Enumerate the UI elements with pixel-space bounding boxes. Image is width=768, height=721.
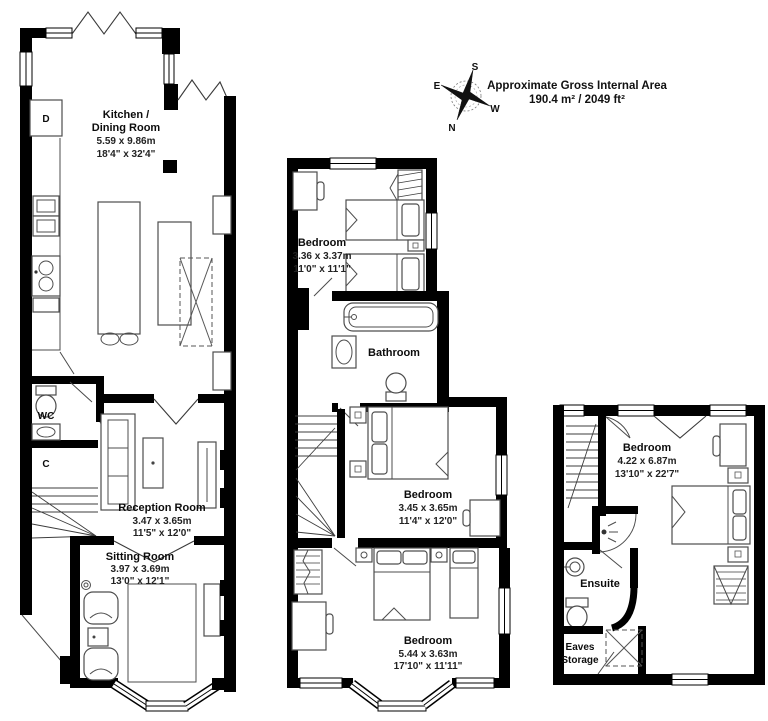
toilet-cistern <box>36 386 56 395</box>
bedroom-front-label: Bedroom <box>298 237 347 249</box>
shower <box>600 514 636 552</box>
kitchen-label-2: Dining Room <box>92 122 161 134</box>
window <box>136 28 162 38</box>
chair <box>463 510 470 526</box>
ground-floor-plan: D Kitchen / Dining Room 5.59 x 9.86m 18'… <box>20 12 236 711</box>
nightstand <box>356 548 372 562</box>
single-bed <box>346 200 424 240</box>
bedroom-front-metric: 3.36 x 3.37m <box>293 251 352 262</box>
second-floor-plan: Ensuite Eaves Storage <box>553 405 765 685</box>
window <box>710 405 746 416</box>
stool <box>120 333 138 345</box>
compass-north: N <box>448 123 455 134</box>
double-bed <box>672 486 750 544</box>
window <box>330 158 376 169</box>
pillar <box>163 160 177 173</box>
window <box>164 54 174 84</box>
bedroom-rear-label: Bedroom <box>404 635 453 647</box>
nightstand <box>350 407 366 423</box>
staircase <box>295 416 337 536</box>
eaves-hatch <box>606 630 642 666</box>
kitchen-imperial: 18'4" x 32'4" <box>97 149 156 160</box>
chair <box>713 436 720 456</box>
patio-doors-open-icon <box>178 80 228 100</box>
basin <box>564 558 584 576</box>
lamp <box>82 581 91 590</box>
kitchen-metric: 5.59 x 9.86m <box>97 136 156 147</box>
toilet <box>566 598 588 628</box>
sitting-label: Sitting Room <box>106 551 175 563</box>
first-floor-plan: Bedroom 3.36 x 3.37m 11'0" x 11'1" Bathr… <box>287 158 510 711</box>
floorplan-drawing: S E W N Approximate Gross Internal Area … <box>0 0 768 721</box>
window <box>499 588 510 634</box>
bedroom-middle-imperial: 11'4" x 12'0" <box>399 516 457 527</box>
cupboard-label: C <box>42 459 49 470</box>
kitchen-unit <box>33 298 59 312</box>
compass-rose: S E W N <box>434 62 501 134</box>
chimney-breast <box>220 488 236 508</box>
front-door <box>22 615 62 662</box>
basin <box>332 336 356 368</box>
bedroom-front-imperial: 11'0" x 11'1" <box>293 264 351 275</box>
wardrobe <box>714 566 748 604</box>
floorplan-page: S E W N Approximate Gross Internal Area … <box>0 0 768 721</box>
bedroom-rear-imperial: 17'10" x 11'11" <box>394 661 463 672</box>
staircase <box>566 424 598 508</box>
rug <box>128 584 196 682</box>
sideboard <box>213 196 231 234</box>
chair <box>317 182 324 200</box>
reception-imperial: 11'5" x 12'0" <box>133 528 191 539</box>
chimney-breast <box>291 288 309 330</box>
armchair <box>84 592 118 624</box>
bay-window <box>352 684 452 711</box>
sitting-metric: 3.97 x 3.69m <box>111 564 170 575</box>
bedroom-rear-metric: 5.44 x 3.63m <box>399 649 458 660</box>
bay-window <box>114 678 236 711</box>
area-value: 190.4 m² / 2049 ft² <box>529 94 625 106</box>
double-bed <box>374 548 430 620</box>
double-bed <box>368 407 448 479</box>
bathtub <box>344 303 438 331</box>
reception-metric: 3.47 x 3.65m <box>133 516 192 527</box>
chimney-breast <box>220 450 236 470</box>
bifold-doors-open-icon <box>72 12 136 34</box>
area-title: Approximate Gross Internal Area <box>487 80 667 92</box>
ensuite-label: Ensuite <box>580 578 620 590</box>
sitting-imperial: 13'0" x 12'1" <box>111 576 170 587</box>
bedroom-top-metric: 4.22 x 6.87m <box>618 456 677 467</box>
appliance-d-label: D <box>42 114 49 125</box>
bedroom-middle-label: Bedroom <box>404 489 453 501</box>
window <box>20 52 32 86</box>
chimney-breast <box>220 580 236 596</box>
window <box>46 28 72 38</box>
eaves-label-1: Eaves <box>566 642 595 653</box>
doors-open-icon <box>654 416 706 438</box>
wardrobe <box>294 550 322 594</box>
single-bed <box>346 254 424 294</box>
kitchen-label-1: Kitchen / <box>103 109 149 121</box>
side-table <box>88 628 108 646</box>
compass-south: S <box>472 62 479 73</box>
chair <box>326 614 333 634</box>
desk <box>293 172 317 210</box>
desk <box>470 500 500 536</box>
hob <box>32 256 60 296</box>
desk <box>292 602 326 650</box>
chimney-breast <box>220 620 236 636</box>
area-header: Approximate Gross Internal Area 190.4 m²… <box>487 80 667 106</box>
armchair <box>84 648 118 680</box>
reception-label: Reception Room <box>118 502 206 514</box>
sofa <box>101 414 135 510</box>
staircase <box>32 488 98 538</box>
nightstand <box>431 548 447 562</box>
basin <box>32 424 60 440</box>
bathroom-label: Bathroom <box>368 347 420 359</box>
window <box>496 455 507 495</box>
window <box>300 678 342 688</box>
compass-east: E <box>434 81 441 92</box>
nightstand <box>728 547 748 562</box>
single-bed <box>450 548 478 618</box>
nightstand <box>728 468 748 483</box>
compass-star-icon <box>441 70 490 120</box>
sideboard <box>213 352 231 390</box>
nightstand <box>408 240 424 251</box>
curved-wall <box>612 586 634 628</box>
kitchen-island <box>98 202 140 334</box>
hearth <box>204 584 220 636</box>
double-doors-open-icon <box>154 399 198 424</box>
window <box>618 405 654 416</box>
toilet <box>386 373 406 401</box>
eaves-label-2: Storage <box>561 655 599 666</box>
kitchen-counter <box>32 138 60 350</box>
window <box>456 678 494 688</box>
bedroom-top-imperial: 13'10" x 22'7" <box>615 469 680 480</box>
stool <box>101 333 119 345</box>
nightstand <box>350 461 366 477</box>
window <box>672 674 708 685</box>
bedroom-top-label: Bedroom <box>623 442 672 454</box>
bedroom-middle-metric: 3.45 x 3.65m <box>399 503 458 514</box>
wc-label: WC <box>38 411 55 422</box>
window <box>426 213 437 249</box>
compass-west: W <box>490 104 500 115</box>
desk <box>720 424 746 466</box>
